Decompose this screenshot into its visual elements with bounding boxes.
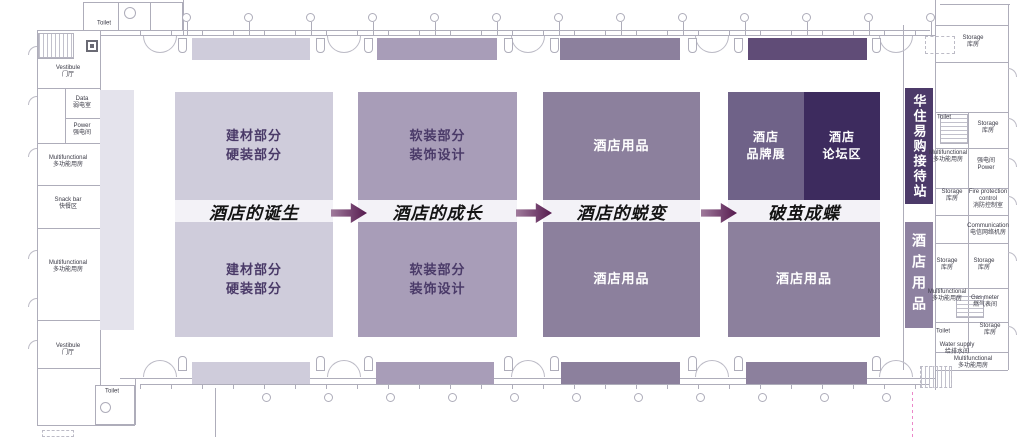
rightwing-divider xyxy=(935,62,1008,63)
leftwing-room-wall xyxy=(65,88,66,143)
grid-bubble xyxy=(864,13,873,22)
grid-bubble xyxy=(758,393,767,402)
zone-label: 软装部分 装饰设计 xyxy=(409,127,465,165)
door-leaf xyxy=(734,356,743,371)
door-arc xyxy=(896,36,913,53)
booth-strip-top-4 xyxy=(748,38,867,60)
grid-tick xyxy=(931,22,932,35)
door-arc xyxy=(1008,118,1017,127)
door-arc xyxy=(28,298,37,307)
door-leaf xyxy=(316,38,325,53)
stage-band-phase3: 酒店的蜕变 xyxy=(543,200,700,222)
grid-bubble xyxy=(802,13,811,22)
room-label-vestibule-upper: Vestibule门厅 xyxy=(56,65,80,79)
grid-bubble xyxy=(882,393,891,402)
stage-band-phase1: 酒店的诞生 xyxy=(175,200,333,222)
door-leaf xyxy=(178,38,187,53)
door-arc xyxy=(327,360,344,377)
grid-bubble xyxy=(368,13,377,22)
expansion-joint-line xyxy=(912,390,913,437)
room-label-data: Data弱电室 xyxy=(73,96,91,110)
room-label-gas-meter: Gas meter燃气表间 xyxy=(971,295,999,309)
door-arc xyxy=(879,36,896,53)
grid-tick xyxy=(249,22,250,35)
room-label-storage-r0: Storage库房 xyxy=(962,35,983,49)
wall-rightwing-outer xyxy=(1008,4,1009,370)
door-arc xyxy=(528,360,545,377)
room-label-snackbar: Snack bar快餐区 xyxy=(54,197,81,211)
exhibition-floor-plan: 建材部分 硬装部分 酒店的诞生 建材部分 硬装部分 软装部分 装饰设计 酒店的成… xyxy=(0,0,1024,437)
door-arc xyxy=(695,360,712,377)
door-arc xyxy=(28,148,37,157)
wall-leftwing-bottom xyxy=(37,425,135,426)
grid-bubble xyxy=(492,13,501,22)
door-arc xyxy=(28,96,37,105)
door-arc xyxy=(1008,252,1017,261)
zone-phase4-bottom: 酒店用品 xyxy=(728,222,880,337)
door-arc xyxy=(712,360,729,377)
grid-tick xyxy=(497,22,498,35)
rightwing-divider xyxy=(935,112,1008,113)
stage-label: 破茧成蝶 xyxy=(768,199,840,224)
toilet-fixture xyxy=(100,402,111,413)
door-arc xyxy=(511,360,528,377)
grid-bubble xyxy=(182,13,191,22)
grid-bubble xyxy=(616,13,625,22)
booth-strip-bottom-3 xyxy=(561,362,680,384)
zone-phase1-top: 建材部分 硬装部分 xyxy=(175,92,333,200)
leftwing-divider xyxy=(37,320,100,321)
door-leaf xyxy=(504,38,513,53)
door-arc xyxy=(896,360,913,377)
booth-strip-top-1 xyxy=(192,38,310,60)
grid-tick xyxy=(869,22,870,35)
leftwing-divider xyxy=(65,118,100,119)
booth-strip-bottom-4 xyxy=(746,362,867,384)
door-leaf xyxy=(364,38,373,53)
zone-phase3-bottom: 酒店用品 xyxy=(543,222,700,337)
door-arc xyxy=(344,36,361,53)
door-arc xyxy=(1008,326,1017,335)
grid-bubble xyxy=(926,13,935,22)
door-arc xyxy=(1008,68,1017,77)
room-label-water-supply: Water supply给排水间 xyxy=(940,342,975,356)
zone-label: 酒店用品 xyxy=(593,137,649,156)
room-label-multifunctional-r15: Multifunctional多功能用房 xyxy=(954,356,992,370)
zone-label: 建材部分 硬装部分 xyxy=(226,127,282,165)
zone-label: 酒店用品 xyxy=(593,270,649,289)
door-arc xyxy=(528,36,545,53)
stair-top-left xyxy=(38,33,74,58)
zone-label: 建材部分 硬装部分 xyxy=(226,261,282,299)
door-leaf xyxy=(364,356,373,371)
grid-tick xyxy=(187,22,188,35)
toilet-fixture xyxy=(124,7,136,19)
zone-label: 软装部分 装饰设计 xyxy=(409,261,465,299)
door-leaf xyxy=(872,356,881,371)
door-arc xyxy=(28,340,37,349)
door-leaf xyxy=(550,356,559,371)
zone-phase4-forum: 酒店 论坛区 xyxy=(804,92,880,200)
door-arc xyxy=(879,360,896,377)
door-leaf xyxy=(178,356,187,371)
door-leaf xyxy=(550,38,559,53)
zone-label: 酒店用品 xyxy=(776,270,832,289)
door-leaf xyxy=(316,356,325,371)
dimension-ruler-top xyxy=(140,30,930,35)
grid-bubble xyxy=(678,13,687,22)
leftwing-divider xyxy=(37,228,100,229)
grid-bubble xyxy=(740,13,749,22)
door-arc xyxy=(160,36,177,53)
door-leaf xyxy=(504,356,513,371)
room-label-storage-r6: Storage库房 xyxy=(941,189,962,203)
wall-bottom-corridor xyxy=(215,388,216,437)
grid-tick xyxy=(807,22,808,35)
zone-label: 酒店 论坛区 xyxy=(822,129,861,164)
door-arc xyxy=(28,250,37,259)
stair-bottom-right xyxy=(920,366,952,388)
toilet-partition xyxy=(150,2,151,31)
grid-bubble xyxy=(244,13,253,22)
zone-phase2-bottom: 软装部分 装饰设计 xyxy=(358,222,517,337)
grid-bubble xyxy=(696,393,705,402)
room-label-multifunctional-left-2: Multifunctional多功能用房 xyxy=(49,260,87,274)
booth-strip-bottom-2 xyxy=(376,362,494,384)
room-label-fire-protection: Fire protection control消防控制室 xyxy=(967,189,1009,211)
grid-bubble xyxy=(820,393,829,402)
door-arc xyxy=(344,360,361,377)
door-leaf xyxy=(688,38,697,53)
stair-bottom-left xyxy=(42,430,74,437)
grid-bubble xyxy=(572,393,581,402)
room-label-multifunctional-r10: Multifunctional多功能用房 xyxy=(928,289,966,303)
grid-tick xyxy=(683,22,684,35)
door-arc xyxy=(143,36,160,53)
door-leaf xyxy=(872,38,881,53)
room-label-storage-r12: Storage库房 xyxy=(979,323,1000,337)
stair-top-right xyxy=(925,36,955,54)
zone-phase4-brand: 酒店 品牌展 xyxy=(728,92,804,200)
grid-tick xyxy=(745,22,746,35)
grid-bubble xyxy=(324,393,333,402)
booth-strip-top-3 xyxy=(560,38,680,60)
grid-bubble xyxy=(634,393,643,402)
banner-supplies: 酒店用品 xyxy=(905,222,933,328)
column-top-left xyxy=(86,40,98,52)
door-arc xyxy=(143,360,160,377)
booth-strip-top-2 xyxy=(377,38,497,60)
grid-tick xyxy=(311,22,312,35)
grid-tick xyxy=(559,22,560,35)
wall-rightwing-top xyxy=(935,25,1008,26)
room-label-storage-r2: Storage库房 xyxy=(977,121,998,135)
leftwing-divider xyxy=(37,185,100,186)
door-arc xyxy=(695,36,712,53)
room-label-toilet-r1: Toilet xyxy=(937,114,951,121)
grid-bubble xyxy=(448,393,457,402)
stage-label: 酒店的诞生 xyxy=(209,199,299,224)
zone-label: 酒店 品牌展 xyxy=(746,129,785,164)
left-aisle-strip xyxy=(100,90,134,330)
stage-label: 酒店的成长 xyxy=(393,199,483,224)
room-label-vestibule-lower: Vestibule门厅 xyxy=(56,343,80,357)
rightwing-divider xyxy=(935,243,1008,244)
grid-tick xyxy=(621,22,622,35)
stage-label: 酒店的蜕变 xyxy=(577,199,667,224)
grid-bubble xyxy=(306,13,315,22)
room-label-toilet-bottom-left: Toilet xyxy=(105,388,119,395)
door-arc xyxy=(160,360,177,377)
grid-tick xyxy=(373,22,374,35)
door-arc xyxy=(712,36,729,53)
banner-reception: 华住易购接待站 xyxy=(905,88,933,204)
zone-phase2-top: 软装部分 装饰设计 xyxy=(358,92,517,200)
leftwing-divider xyxy=(37,58,74,59)
rightwing-divider xyxy=(935,215,1008,216)
stage-band-phase4: 破茧成蝶 xyxy=(728,200,880,222)
door-arc xyxy=(511,36,528,53)
booth-strip-bottom-1 xyxy=(192,362,310,384)
grid-tick xyxy=(435,22,436,35)
leftwing-divider xyxy=(37,88,100,89)
toilet-partition xyxy=(118,2,119,31)
room-label-communication: Communication电信网络机房 xyxy=(966,223,1010,237)
room-label-toilet-top-left: Toilet xyxy=(97,20,111,27)
room-label-multifunctional-r5: Multifunctional多功能用房 xyxy=(929,150,967,164)
grid-bubble xyxy=(262,393,271,402)
room-label-storage-r8: Storage库房 xyxy=(936,258,957,272)
grid-bubble xyxy=(386,393,395,402)
leftwing-divider xyxy=(37,368,100,369)
door-arc xyxy=(327,36,344,53)
zone-phase3-top: 酒店用品 xyxy=(543,92,700,200)
leftwing-divider xyxy=(37,143,100,144)
wall-right-corridor xyxy=(903,25,904,370)
room-label-multifunctional-left-1: Multifunctional多功能用房 xyxy=(49,155,87,169)
stage-band-phase2: 酒店的成长 xyxy=(358,200,517,222)
wall-rightwing-topmost xyxy=(940,4,1010,5)
grid-bubble xyxy=(510,393,519,402)
room-label-storage-r9: Storage库房 xyxy=(973,258,994,272)
room-label-power-right: 强电间Power xyxy=(977,158,995,172)
zone-phase1-bottom: 建材部分 硬装部分 xyxy=(175,222,333,337)
room-label-power-left: Power强电间 xyxy=(73,123,91,137)
door-arc xyxy=(1008,196,1017,205)
grid-bubble xyxy=(430,13,439,22)
dimension-ruler-bottom xyxy=(140,384,930,389)
door-leaf xyxy=(734,38,743,53)
door-arc xyxy=(1008,158,1017,167)
grid-bubble xyxy=(554,13,563,22)
door-arc xyxy=(28,46,37,55)
room-label-toilet-r13: Toilet xyxy=(936,328,950,335)
door-leaf xyxy=(688,356,697,371)
wall-bottom-left xyxy=(135,378,136,425)
